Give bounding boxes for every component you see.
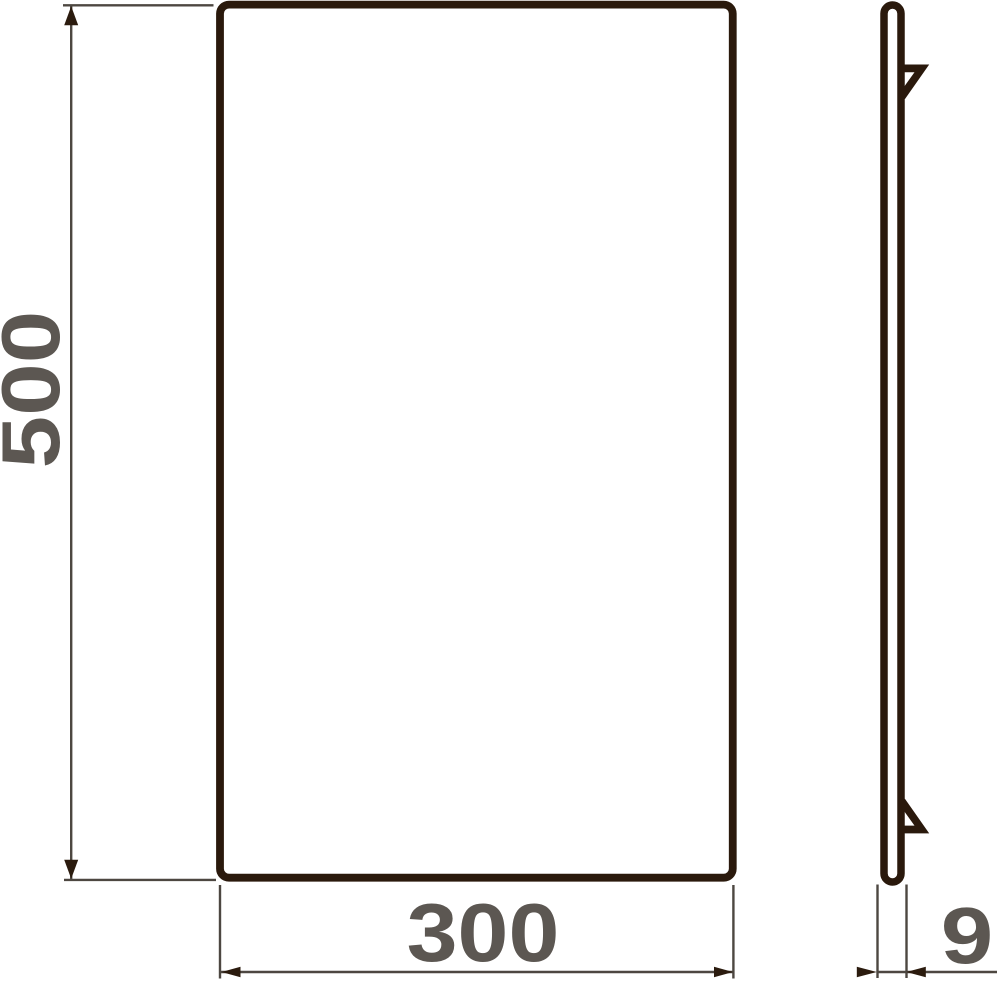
svg-text:300: 300 [407, 886, 560, 979]
svg-text:500: 500 [0, 311, 77, 469]
svg-text:9: 9 [941, 891, 993, 981]
